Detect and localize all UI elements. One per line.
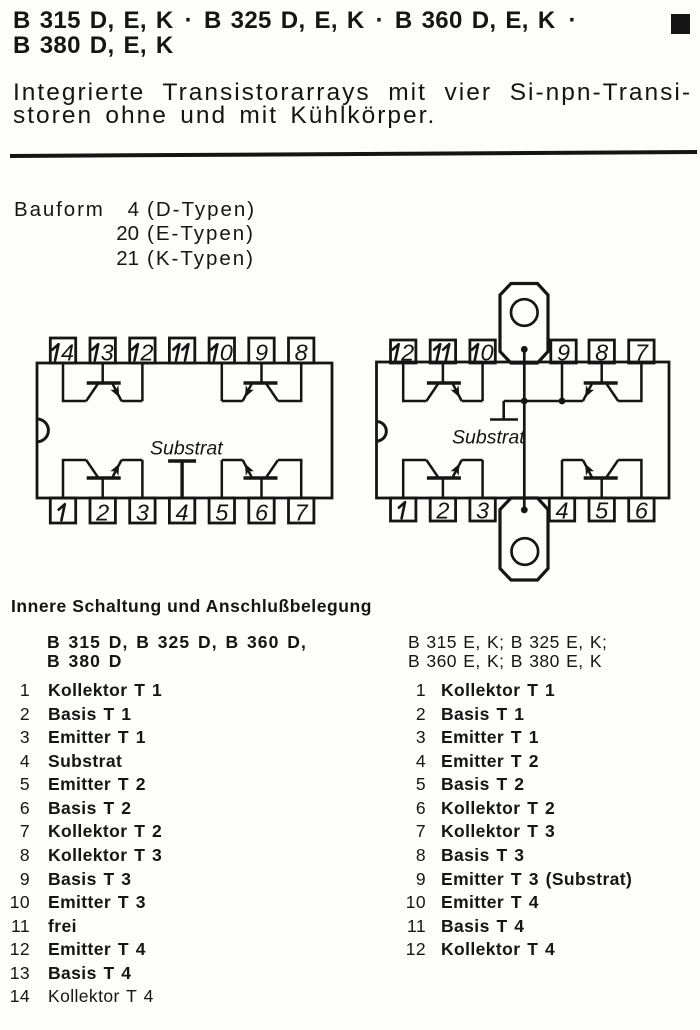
svg-text:5: 5 <box>215 499 229 525</box>
svg-text:Substrat: Substrat <box>452 427 526 449</box>
svg-text:8: 8 <box>595 339 608 365</box>
svg-text:2: 2 <box>435 497 449 523</box>
svg-text:2: 2 <box>400 339 414 365</box>
svg-text:6: 6 <box>255 499 269 525</box>
svg-text:4: 4 <box>555 497 568 523</box>
svg-text:7: 7 <box>635 339 649 365</box>
svg-text:3: 3 <box>476 497 489 523</box>
svg-text:9: 9 <box>255 339 268 365</box>
svg-text:7: 7 <box>295 499 309 525</box>
svg-text:2: 2 <box>95 499 109 525</box>
svg-text:0: 0 <box>220 339 233 365</box>
svg-text:4: 4 <box>61 339 74 365</box>
svg-text:4: 4 <box>176 499 189 525</box>
svg-text:9: 9 <box>557 339 570 365</box>
svg-text:5: 5 <box>595 497 609 523</box>
svg-text:3: 3 <box>136 499 149 525</box>
svg-text:0: 0 <box>481 339 494 365</box>
svg-text:3: 3 <box>101 339 114 365</box>
svg-text:Substrat: Substrat <box>150 438 224 460</box>
svg-text:2: 2 <box>139 339 153 365</box>
svg-text:6: 6 <box>635 497 649 523</box>
svg-text:8: 8 <box>295 339 308 365</box>
